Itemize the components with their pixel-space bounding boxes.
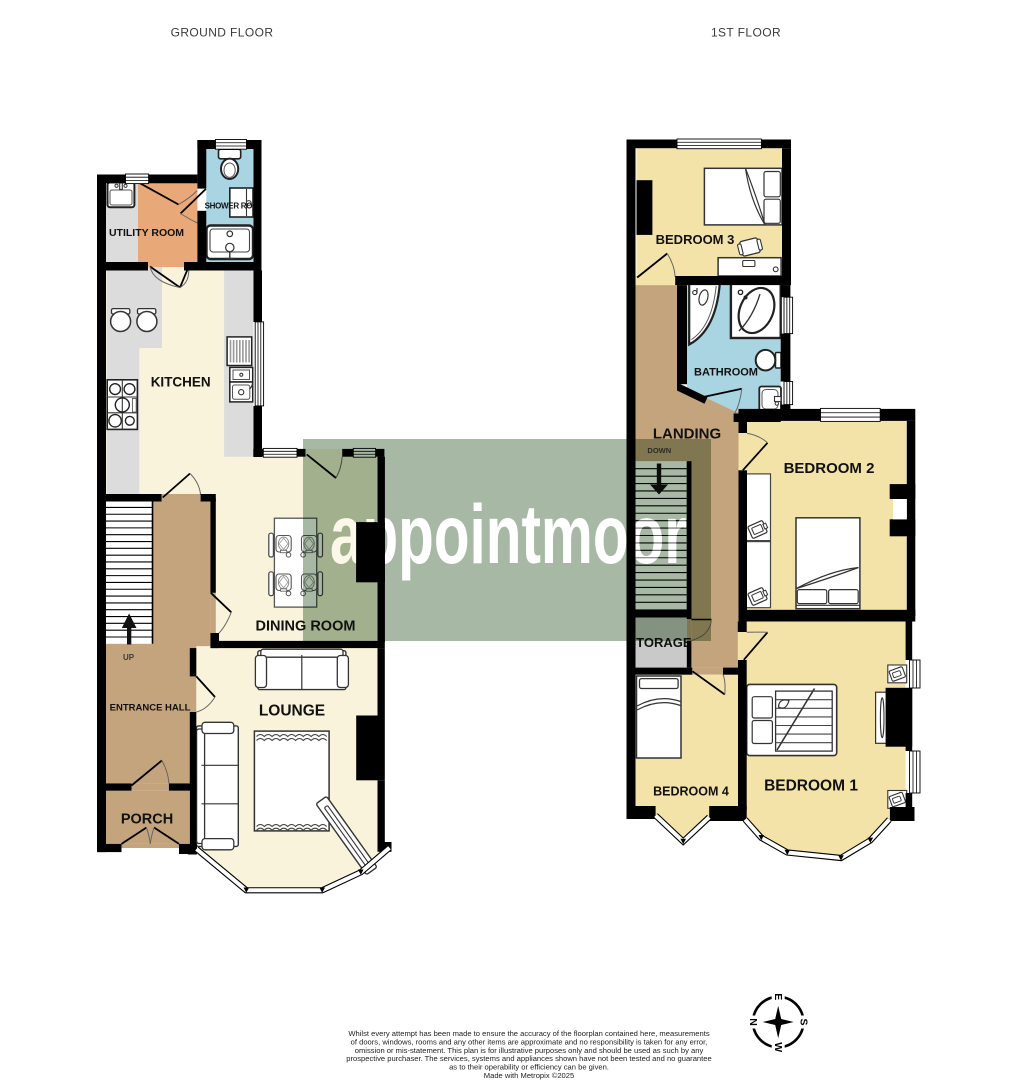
svg-text:DINING ROOM: DINING ROOM [256,619,356,635]
svg-text:BEDROOM 4: BEDROOM 4 [653,785,729,799]
svg-text:S: S [797,1018,809,1025]
svg-text:LOUNGE: LOUNGE [259,703,325,720]
svg-text:N: N [747,1018,759,1026]
svg-text:ENTRANCE HALL: ENTRANCE HALL [110,703,191,714]
svg-text:BEDROOM 1: BEDROOM 1 [764,778,858,795]
svg-text:BEDROOM 3: BEDROOM 3 [656,232,735,247]
svg-text:KITCHEN: KITCHEN [151,375,211,390]
svg-text:BATHROOM: BATHROOM [694,367,758,379]
svg-text:GROUND FLOOR: GROUND FLOOR [171,26,274,40]
svg-text:UTILITY ROOM: UTILITY ROOM [109,227,184,239]
svg-text:BEDROOM 2: BEDROOM 2 [784,460,875,477]
svg-text:W: W [772,1042,784,1052]
svg-text:LANDING: LANDING [653,426,721,443]
svg-text:PORCH: PORCH [121,812,173,828]
svg-text:E: E [772,993,784,1000]
svg-text:UP: UP [123,653,135,662]
svg-text:Made with Metropix ©2025: Made with Metropix ©2025 [484,1071,574,1080]
svg-text:1ST FLOOR: 1ST FLOOR [711,26,781,40]
